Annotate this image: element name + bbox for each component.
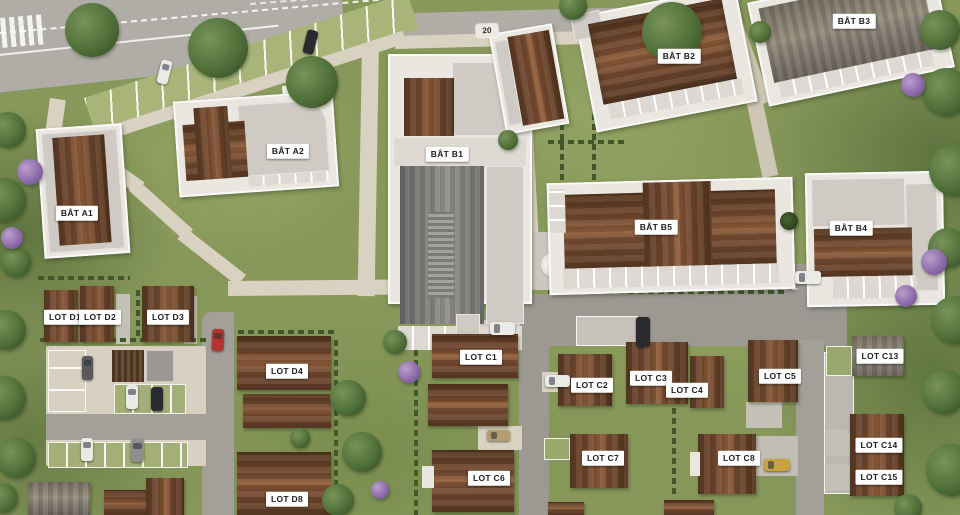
car-icon <box>795 271 821 284</box>
label-lot-c1[interactable]: LOT C1 <box>460 350 502 365</box>
car-icon <box>82 356 93 380</box>
driveway <box>544 438 570 460</box>
crosswalk-icon <box>0 14 44 48</box>
terrace <box>422 466 434 488</box>
car-icon <box>131 439 144 462</box>
hedge <box>238 330 334 334</box>
parking-lane <box>46 414 212 440</box>
label-bat-b5[interactable]: BÂT B5 <box>635 220 678 235</box>
hedge <box>136 288 140 336</box>
car-icon <box>151 387 163 411</box>
label-lot-c15[interactable]: LOT C15 <box>855 470 902 485</box>
label-bat-a2[interactable]: BÂT A2 <box>267 144 309 159</box>
building-bat-a1[interactable] <box>36 123 131 259</box>
hedge <box>548 140 628 144</box>
label-lot-d3[interactable]: LOT D3 <box>147 310 189 325</box>
house <box>146 478 184 515</box>
label-lot-c4[interactable]: LOT C4 <box>666 383 708 398</box>
carport-icon <box>112 350 144 382</box>
footpath <box>746 97 778 179</box>
driveway <box>826 430 850 456</box>
flowering-tree-icon <box>901 73 925 97</box>
label-lot-c7[interactable]: LOT C7 <box>582 451 624 466</box>
label-lot-c2[interactable]: LOT C2 <box>571 378 613 393</box>
label-bat-b4[interactable]: BÂT B4 <box>830 221 873 236</box>
tree-icon <box>286 56 338 108</box>
parking-stalls <box>48 442 188 468</box>
footpath <box>358 44 379 296</box>
car-icon <box>490 322 515 335</box>
house <box>28 482 90 515</box>
driveway <box>746 402 782 428</box>
label-lot-c13[interactable]: LOT C13 <box>856 349 903 364</box>
car-icon <box>126 385 138 409</box>
label-lot-c5[interactable]: LOT C5 <box>759 369 801 384</box>
parking-stalls <box>114 384 186 414</box>
label-lot-c8[interactable]: LOT C8 <box>718 451 760 466</box>
flowering-tree-icon <box>895 285 917 307</box>
flowering-tree-icon <box>398 361 420 383</box>
building-bat-b5[interactable] <box>547 177 796 295</box>
label-lot-d8[interactable]: LOT D8 <box>266 492 308 507</box>
tree-icon <box>922 370 960 414</box>
hedge <box>38 276 130 280</box>
van-icon <box>545 375 570 387</box>
house <box>548 502 584 515</box>
tree-icon <box>322 484 354 515</box>
tree-icon <box>1 247 31 277</box>
flowering-tree-icon <box>921 249 947 275</box>
building-bat-b4[interactable] <box>805 171 945 307</box>
tree-icon <box>290 428 310 448</box>
label-lot-c6[interactable]: LOT C6 <box>468 471 510 486</box>
tree-icon <box>498 130 518 150</box>
driveway <box>826 346 852 376</box>
label-bat-b2[interactable]: BÂT B2 <box>658 49 701 64</box>
tree-icon <box>342 432 382 472</box>
hedge <box>672 408 676 494</box>
flowering-tree-icon <box>371 481 389 499</box>
label-lot-d4[interactable]: LOT D4 <box>266 364 308 379</box>
label-lot-c14[interactable]: LOT C14 <box>855 438 902 453</box>
house <box>104 490 146 515</box>
garden-shed <box>146 350 174 382</box>
road-east-vertical <box>796 340 824 515</box>
flowering-tree-icon <box>17 159 43 185</box>
label-bat-b3[interactable]: BÂT B3 <box>833 14 876 29</box>
label-lot-d2[interactable]: LOT D2 <box>79 310 121 325</box>
speed-limit-marking: 20 <box>476 23 499 37</box>
tree-icon <box>920 10 960 50</box>
label-bat-b1[interactable]: BÂT B1 <box>426 147 469 162</box>
terrace <box>690 452 700 476</box>
driveway <box>826 464 850 490</box>
car-icon <box>487 430 510 441</box>
car-icon <box>636 317 650 347</box>
tree-icon <box>894 494 922 515</box>
tree-icon <box>749 21 771 43</box>
bush-icon <box>780 212 798 230</box>
flowering-tree-icon <box>1 227 23 249</box>
masterplan-canvas: 20 BÂT A1 BÂT A2 BÂT B1 BÂT B2 BÂT B3 BÂ… <box>0 0 960 515</box>
tree-icon <box>65 3 119 57</box>
house-lot-c1-south[interactable] <box>428 384 508 426</box>
car-icon <box>81 438 93 461</box>
footpath <box>177 228 246 286</box>
house <box>664 500 714 515</box>
house-lot-d4-annex[interactable] <box>243 394 331 428</box>
car-icon <box>764 459 790 471</box>
label-bat-a1[interactable]: BÂT A1 <box>56 206 98 221</box>
tree-icon <box>383 330 407 354</box>
parking-stalls <box>48 350 86 412</box>
tree-icon <box>188 18 248 78</box>
car-icon <box>212 329 225 351</box>
tree-icon <box>330 380 366 416</box>
